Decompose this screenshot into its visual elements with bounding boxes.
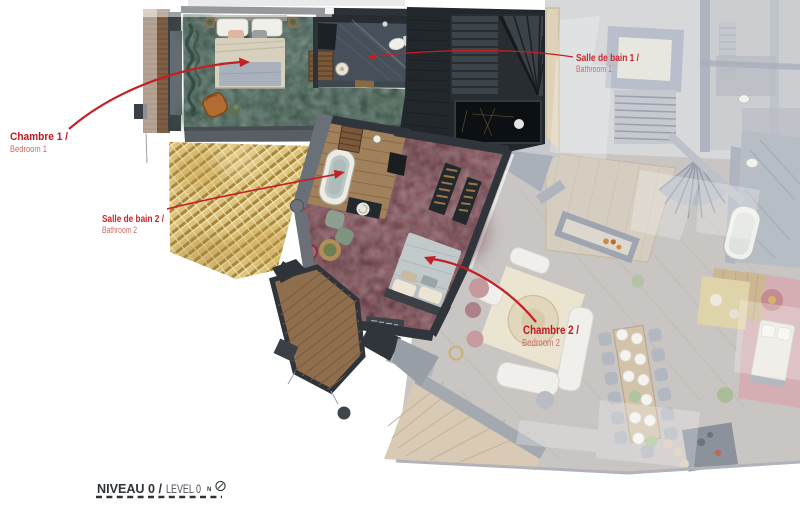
svg-text:Chambre 1 /: Chambre 1 / bbox=[10, 131, 68, 143]
svg-text:N: N bbox=[207, 487, 211, 493]
svg-text:Bedroom 2: Bedroom 2 bbox=[522, 337, 560, 349]
svg-text:Chambre 2 /: Chambre 2 / bbox=[523, 325, 580, 337]
svg-text:LEVEL 0: LEVEL 0 bbox=[166, 482, 201, 496]
svg-text:Bedroom 1: Bedroom 1 bbox=[10, 144, 47, 155]
svg-text:Salle de bain 1 /: Salle de bain 1 / bbox=[576, 53, 639, 64]
svg-text:NIVEAU 0 /: NIVEAU 0 / bbox=[97, 481, 162, 496]
svg-text:Bathroom 1: Bathroom 1 bbox=[576, 64, 612, 74]
svg-text:Salle de bain 2 /: Salle de bain 2 / bbox=[102, 214, 164, 225]
svg-text:Bathroom 2: Bathroom 2 bbox=[102, 225, 137, 235]
